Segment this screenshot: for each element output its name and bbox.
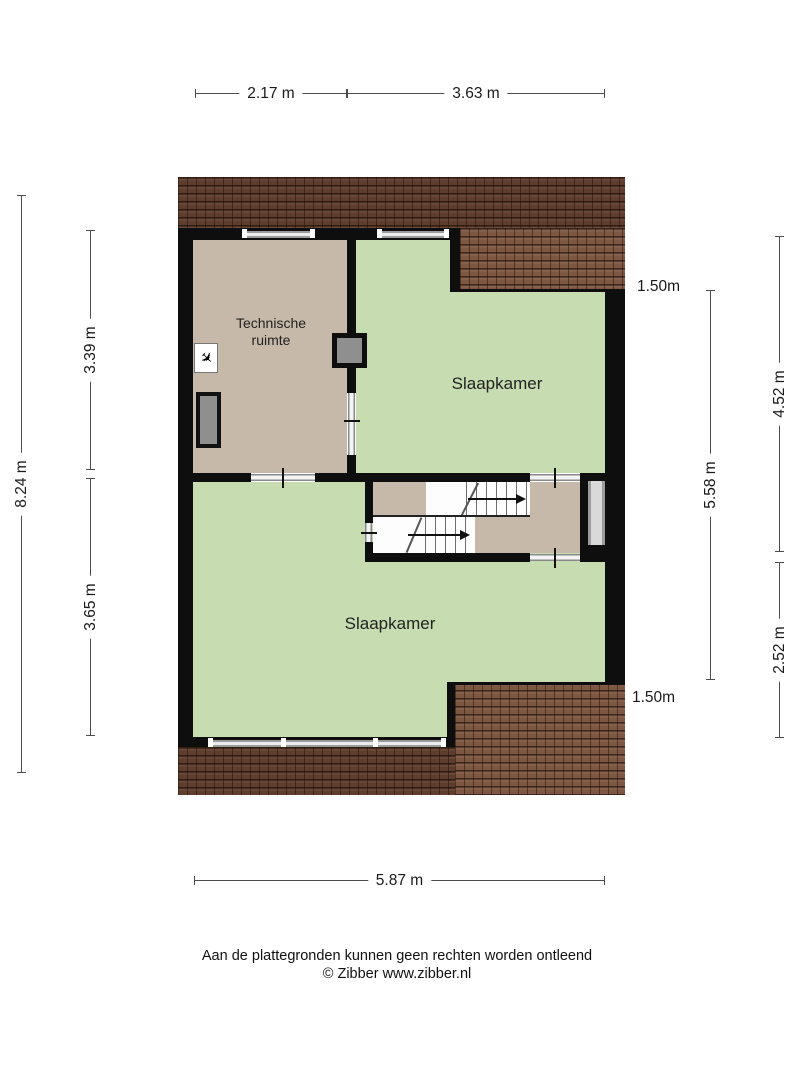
wall-left <box>178 228 193 747</box>
dimension-label: 2.52 m <box>770 618 790 681</box>
roof-block-bottom-right <box>455 682 625 795</box>
wall-corridor-top-a <box>193 473 251 482</box>
wall-stairwell-left-b <box>365 542 373 553</box>
wall-right <box>605 290 625 682</box>
roof-edge-top-right <box>460 289 625 292</box>
wall-middle-below-chimney <box>347 368 356 393</box>
wall-knee-bottom-right <box>447 682 455 737</box>
dimension-left-outer: 8.24 m <box>21 195 22 773</box>
door-technische-ruimte <box>348 393 355 455</box>
wall-stairwell-left-a <box>365 482 373 523</box>
window-landing <box>588 481 605 545</box>
dimension-top-left: 2.17 m <box>195 93 347 94</box>
dimension-label: 3.65 m <box>81 575 101 638</box>
roof-band-top <box>178 177 625 228</box>
stair-flight-divider <box>373 515 530 517</box>
floorplan-page: ✈ Technische ruimte Slaapkamer Slaapkame… <box>0 0 800 1067</box>
opening-tick-stairwell-left <box>361 532 377 534</box>
radiator <box>196 392 221 448</box>
headroom-label-bottom: 1.50m <box>632 689 675 707</box>
room-label-slaapkamer-bottom: Slaapkamer <box>345 614 436 634</box>
dimension-label: 8.24 m <box>12 452 32 515</box>
wall-corridor-top-c <box>347 473 530 482</box>
footer-copyright: © Zibber www.zibber.nl <box>0 966 794 982</box>
window-cap-landing-bottom <box>588 545 605 553</box>
stair-arrow-upper <box>468 498 516 500</box>
window-top-left <box>247 231 310 238</box>
dimension-label: 3.39 m <box>81 318 101 381</box>
roof-block-top-right <box>460 228 625 292</box>
chimney-core <box>337 338 362 363</box>
roof-edge-bottom-right <box>455 682 625 685</box>
stair-arrow-lower <box>408 534 460 536</box>
dimension-label: 3.63 m <box>444 84 507 104</box>
window-mullion <box>441 738 446 747</box>
dimension-label: 5.58 m <box>701 453 721 516</box>
footer-disclaimer: Aan de plattegronden kunnen geen rechten… <box>0 948 794 964</box>
dimension-right-inner: 5.58 m <box>710 290 711 680</box>
mv-unit-icon: ✈ <box>196 348 216 368</box>
wall-landing-right <box>580 482 588 553</box>
door-tick-landing-bottom <box>554 548 556 568</box>
stair-arrowhead-lower <box>460 530 470 540</box>
window-mullion <box>310 229 315 238</box>
room-label-line1: Technische <box>236 315 306 332</box>
dimension-left-inner-bottom: 3.65 m <box>90 478 91 736</box>
roof-band-bottom <box>178 747 455 795</box>
mv-unit-box: ✈ <box>194 343 218 373</box>
door-tick-landing-top <box>554 468 556 488</box>
room-label-line2: ruimte <box>236 332 306 349</box>
window-cap-landing-top <box>588 473 605 481</box>
dimension-left-inner-top: 3.39 m <box>90 230 91 470</box>
window-bottom-a <box>213 740 281 747</box>
window-bottom-c <box>378 740 441 747</box>
dimension-label: 4.52 m <box>770 362 790 425</box>
wall-corridor-bottom-a <box>365 553 530 562</box>
window-top-right <box>382 231 444 238</box>
door-tick-technische-ruimte <box>344 420 360 422</box>
wall-corridor-bottom-b <box>580 553 605 562</box>
dimension-label: 5.87 m <box>368 871 431 891</box>
dimension-right-outer-top: 4.52 m <box>779 236 780 552</box>
dimension-right-outer-bottom: 2.52 m <box>779 562 780 738</box>
window-mullion <box>444 229 449 238</box>
room-label-technische-ruimte: Technische ruimte <box>236 315 306 349</box>
wall-knee-top-right <box>450 228 460 292</box>
window-bottom-b <box>286 740 373 747</box>
stair-arrowhead-upper <box>516 494 526 504</box>
dimension-bottom: 5.87 m <box>194 880 605 881</box>
dimension-top-right: 3.63 m <box>347 93 605 94</box>
wall-middle-upper <box>347 232 356 333</box>
room-label-slaapkamer-top: Slaapkamer <box>452 374 543 394</box>
opening-tick-tr-bedroom <box>282 468 284 488</box>
dimension-label: 2.17 m <box>239 84 302 104</box>
headroom-label-top: 1.50m <box>637 278 680 296</box>
wall-middle-lower <box>347 455 356 473</box>
